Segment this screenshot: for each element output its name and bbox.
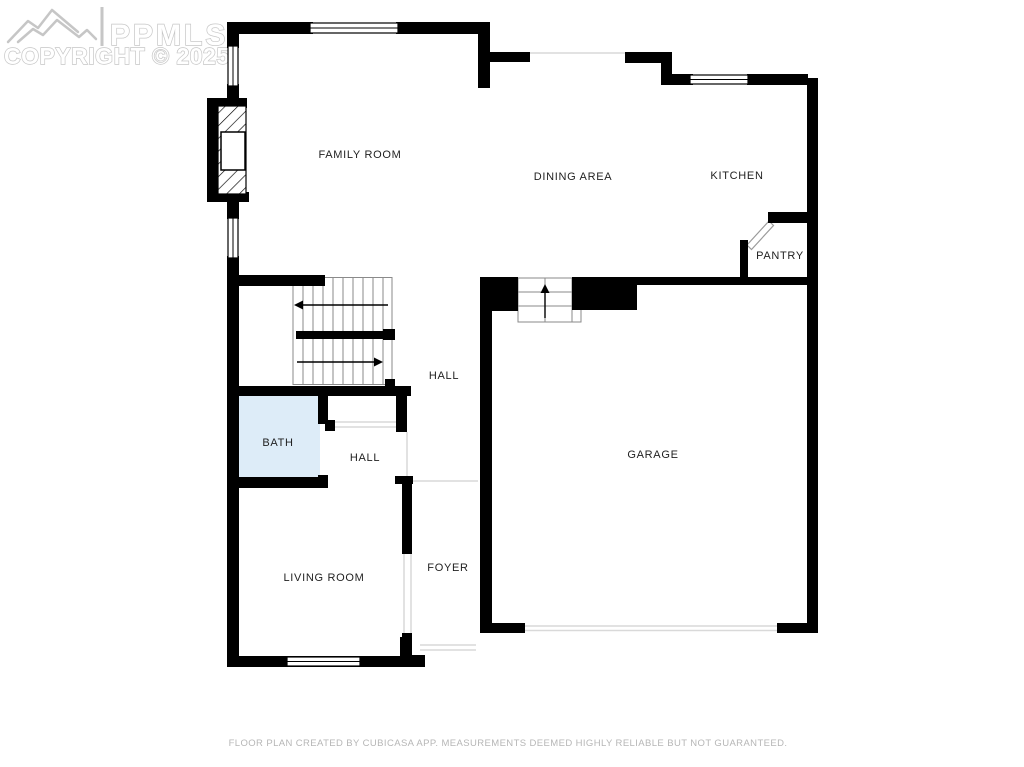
window (287, 657, 360, 666)
main-staircase (293, 278, 395, 387)
room-label-bath: BATH (262, 437, 293, 449)
left-exterior-wall (227, 256, 239, 667)
garage-door-leaf (572, 308, 581, 322)
watermark: PPMLS COPYRIGHT © 2025 (4, 7, 230, 69)
window (310, 23, 398, 33)
livingroom-top-cap (318, 475, 328, 488)
garage-entry-steps (518, 278, 581, 322)
livingroom-top-wall (227, 477, 327, 488)
room-label-living-room: LIVING ROOM (283, 572, 364, 584)
stair-wall-cap (383, 329, 395, 340)
fireplace-firebox (221, 132, 245, 170)
room-label-hall-lower: HALL (350, 452, 380, 464)
foyer-entry-wall (400, 655, 425, 667)
pantry-top-wall (768, 212, 808, 223)
stair-mid-landing-wall (296, 331, 392, 339)
room-label-kitchen: KITCHEN (710, 170, 763, 182)
garage-top-wall (637, 277, 808, 285)
room-label-garage: GARAGE (627, 449, 678, 461)
footer-disclaimer: FLOOR PLAN CREATED BY CUBICASA APP. MEAS… (229, 738, 788, 749)
kitchen-top-wall (661, 74, 693, 85)
family-bottom-wall (227, 275, 325, 286)
garage-bottom-stub (777, 623, 818, 633)
wall-openings (335, 53, 777, 650)
window (228, 46, 238, 86)
room-label-dining-area: DINING AREA (534, 171, 613, 183)
floor-plan-canvas: PPMLS COPYRIGHT © 2025 (0, 0, 1024, 767)
dining-top-stub (488, 52, 530, 62)
mountain-logo-icon (8, 10, 78, 42)
pantry-door-leaf (747, 221, 774, 250)
entry-steps-left-block (480, 277, 518, 311)
window (690, 75, 748, 84)
closet-right-wall (396, 390, 407, 432)
room-label-family-room: FAMILY ROOM (318, 149, 401, 161)
window (228, 218, 238, 258)
room-label-hall-upper: HALL (429, 370, 459, 382)
family-top-wall (227, 22, 313, 34)
fireplace (207, 98, 249, 202)
steps-arrow-up-icon (541, 284, 550, 293)
pantry-left-wall (740, 240, 748, 280)
walls (227, 22, 818, 667)
watermark-copyright: COPYRIGHT © 2025 (4, 43, 230, 69)
kitchen-top-wall (747, 74, 808, 85)
stairs-arrow-right-icon (374, 358, 383, 367)
floor-plan-page: PPMLS COPYRIGHT © 2025 (0, 0, 1024, 767)
stair-wall-cap (385, 379, 395, 386)
room-label-foyer: FOYER (427, 562, 468, 574)
right-exterior-wall (807, 78, 818, 632)
room-labels: FAMILY ROOM DINING AREA KITCHEN PANTRY H… (262, 149, 804, 584)
bath-floor-fill (233, 392, 320, 478)
stairs-arrow-left-icon (294, 301, 303, 310)
left-exterior-wall (227, 22, 239, 48)
family-top-wall (396, 22, 490, 34)
bath-right-wall (318, 392, 328, 424)
garage-bottom-stub (480, 623, 525, 633)
livingroom-right-wall (402, 476, 412, 554)
garage-left-wall (480, 277, 492, 633)
room-label-pantry: PANTRY (756, 250, 804, 262)
entry-steps-right-block (572, 277, 637, 310)
closet-door-jamb (325, 420, 335, 431)
